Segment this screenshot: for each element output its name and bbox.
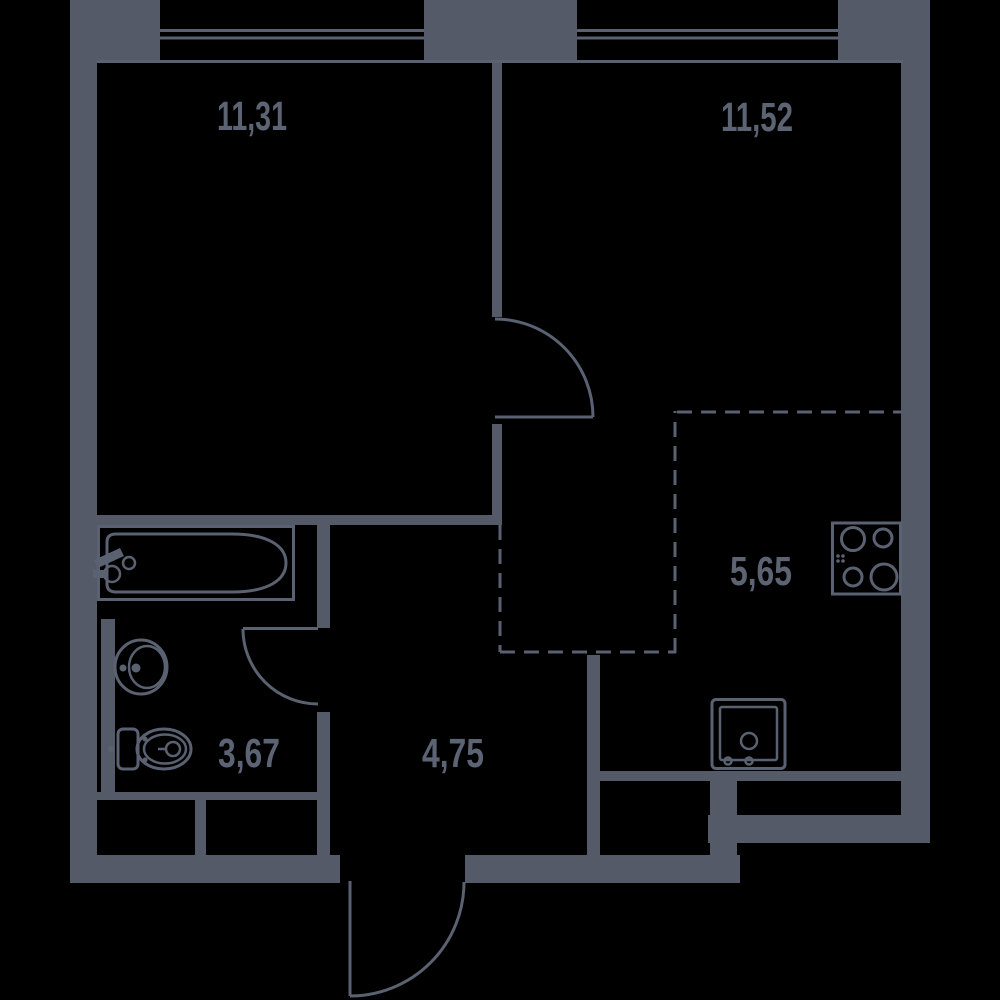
kitchen-zone-boundary: [500, 411, 901, 653]
room-area-label: 3,67: [218, 730, 280, 776]
room-area-label: 4,75: [422, 730, 484, 776]
toilet-icon: [108, 729, 191, 769]
stove-burner: [842, 528, 865, 551]
wall-segment: [465, 855, 740, 883]
door-swing-icon: [350, 881, 464, 996]
stove-control-dot: [841, 559, 845, 563]
stove-burner: [874, 529, 892, 547]
room-area-label: 11,52: [721, 94, 793, 140]
wall-segment: [492, 62, 502, 317]
washbasin-tap: [132, 664, 141, 673]
room-area-label: 11,31: [217, 93, 287, 139]
wall-segment: [70, 515, 502, 525]
wall-segment: [708, 815, 930, 843]
doors-layer: [243, 319, 593, 996]
toilet-tank: [118, 729, 138, 769]
wall-segment: [710, 781, 737, 855]
wall-segment: [70, 855, 340, 883]
wall-segment: [317, 525, 330, 628]
stove-control-dot: [836, 554, 840, 558]
kitchen-sink-icon: [712, 700, 785, 769]
door-swing-icon: [243, 629, 318, 705]
stove-icon: [833, 523, 901, 594]
floor-plan: 11,31 11,52 3,67 4,75 5,65: [0, 0, 1000, 1000]
labels-layer: 11,31 11,52 3,67 4,75 5,65: [217, 93, 793, 776]
wall-segment: [424, 0, 577, 63]
wall-segment: [195, 800, 206, 855]
wall-segment: [901, 0, 930, 843]
stove-burner: [844, 568, 862, 586]
wall-segment: [101, 619, 115, 792]
sink-drain: [741, 733, 757, 749]
wall-segment: [70, 0, 97, 883]
door-swing-icon: [495, 319, 593, 417]
toilet-hinge-dot: [143, 737, 148, 742]
stove-burner: [871, 564, 897, 590]
toilet-hinge-dot: [143, 758, 148, 763]
toilet-flush-detail: [166, 742, 180, 756]
bathtub-icon: [99, 527, 294, 600]
wall-segment: [492, 424, 502, 515]
bathtub-drain: [123, 557, 135, 569]
wall-segment: [597, 771, 901, 781]
window-icon: [160, 31, 424, 39]
washbasin-icon: [115, 640, 167, 694]
wall-segment: [587, 655, 600, 855]
room-area-label: 5,65: [730, 548, 792, 594]
toilet-valve-dot: [108, 746, 114, 752]
floor-plan-canvas: 11,31 11,52 3,67 4,75 5,65: [0, 0, 1000, 1000]
stove-control-dot: [841, 554, 845, 558]
walls-layer: [70, 0, 930, 883]
window-icon: [577, 31, 838, 39]
door-arc: [350, 882, 464, 996]
door-arc: [243, 629, 318, 704]
wall-segment: [317, 712, 330, 855]
door-arc: [495, 319, 593, 417]
washbasin-tap: [120, 665, 127, 672]
wall-segment: [97, 792, 317, 800]
stove-control-dot: [836, 559, 840, 563]
